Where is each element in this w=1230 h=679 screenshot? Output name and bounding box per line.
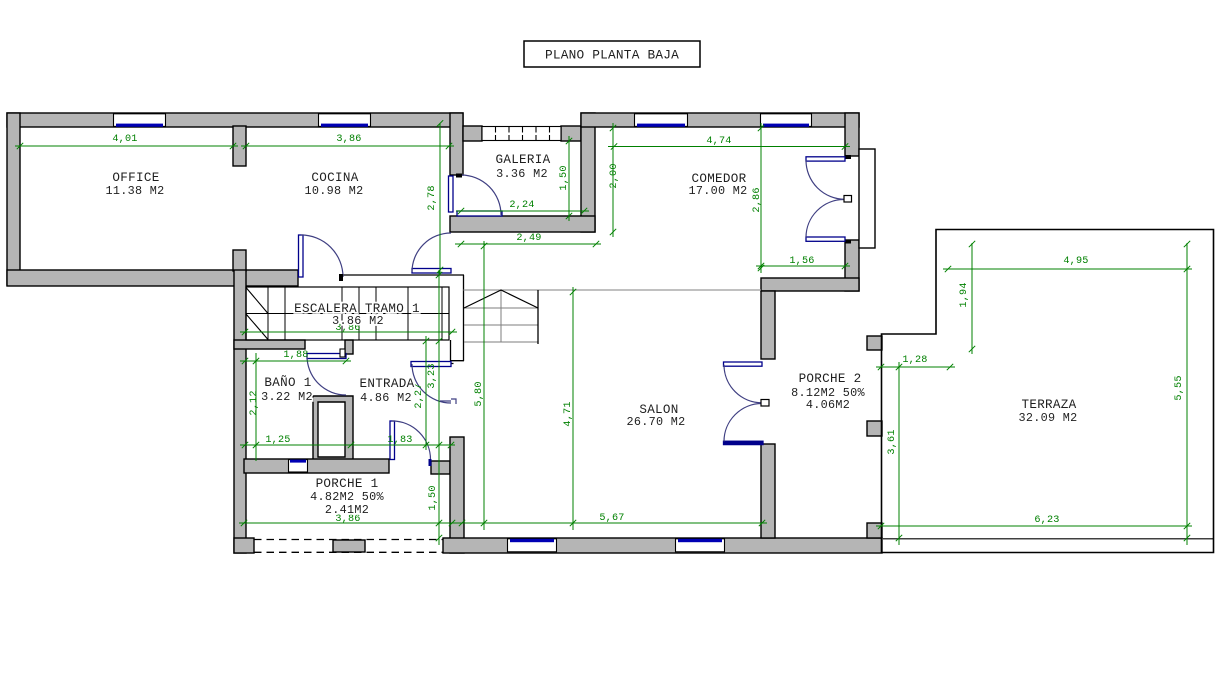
svg-text:GALERIA: GALERIA <box>495 153 550 167</box>
svg-text:1,94: 1,94 <box>959 282 970 307</box>
svg-text:BAÑO 1: BAÑO 1 <box>264 375 311 390</box>
svg-text:5,67: 5,67 <box>599 513 624 524</box>
svg-text:4.82M2 50%: 4.82M2 50% <box>310 490 384 504</box>
svg-text:10.98 M2: 10.98 M2 <box>304 184 363 198</box>
svg-text:17.00 M2: 17.00 M2 <box>688 184 747 198</box>
svg-text:1,50: 1,50 <box>559 165 570 190</box>
svg-text:3,23: 3,23 <box>427 363 438 388</box>
svg-text:3,86: 3,86 <box>336 134 361 145</box>
svg-text:2,24: 2,24 <box>509 200 534 211</box>
svg-text:TERRAZA: TERRAZA <box>1021 398 1076 412</box>
svg-text:PORCHE 2: PORCHE 2 <box>799 372 862 386</box>
svg-text:2,00: 2,00 <box>609 163 620 188</box>
svg-text:4,71: 4,71 <box>563 401 574 426</box>
svg-text:1,50: 1,50 <box>428 485 439 510</box>
svg-text:26.70 M2: 26.70 M2 <box>626 415 685 429</box>
svg-text:1,28: 1,28 <box>902 355 927 366</box>
svg-text:4.86 M2: 4.86 M2 <box>360 391 412 405</box>
svg-text:1,83: 1,83 <box>387 435 412 446</box>
svg-text:3.86 M2: 3.86 M2 <box>332 314 384 328</box>
svg-text:PLANO PLANTA BAJA: PLANO PLANTA BAJA <box>545 48 679 63</box>
svg-text:1,25: 1,25 <box>265 435 290 446</box>
svg-text:4,74: 4,74 <box>706 136 731 147</box>
svg-text:3.22 M2: 3.22 M2 <box>261 390 313 404</box>
svg-text:1,56: 1,56 <box>789 256 814 267</box>
svg-text:PORCHE 1: PORCHE 1 <box>316 477 379 491</box>
svg-text:5,55: 5,55 <box>1174 375 1185 400</box>
svg-text:2,12: 2,12 <box>249 390 260 415</box>
svg-text:OFFICE: OFFICE <box>112 171 159 185</box>
svg-text:ENTRADA: ENTRADA <box>359 377 414 391</box>
svg-text:2,27: 2,27 <box>414 383 425 408</box>
svg-text:32.09 M2: 32.09 M2 <box>1018 411 1077 425</box>
svg-text:6,23: 6,23 <box>1034 515 1059 526</box>
svg-text:4,95: 4,95 <box>1063 256 1088 267</box>
svg-text:5,80: 5,80 <box>474 381 485 406</box>
svg-text:2,86: 2,86 <box>752 187 763 212</box>
svg-text:2,78: 2,78 <box>427 185 438 210</box>
svg-text:COCINA: COCINA <box>311 171 358 185</box>
svg-text:4,01: 4,01 <box>112 134 137 145</box>
svg-text:3,61: 3,61 <box>887 429 898 454</box>
svg-text:2,49: 2,49 <box>516 233 541 244</box>
svg-text:2.41M2: 2.41M2 <box>325 503 369 517</box>
svg-text:1,88: 1,88 <box>283 350 308 361</box>
svg-text:4.06M2: 4.06M2 <box>806 398 850 412</box>
svg-text:3.36 M2: 3.36 M2 <box>496 167 548 181</box>
svg-text:11.38 M2: 11.38 M2 <box>105 184 164 198</box>
